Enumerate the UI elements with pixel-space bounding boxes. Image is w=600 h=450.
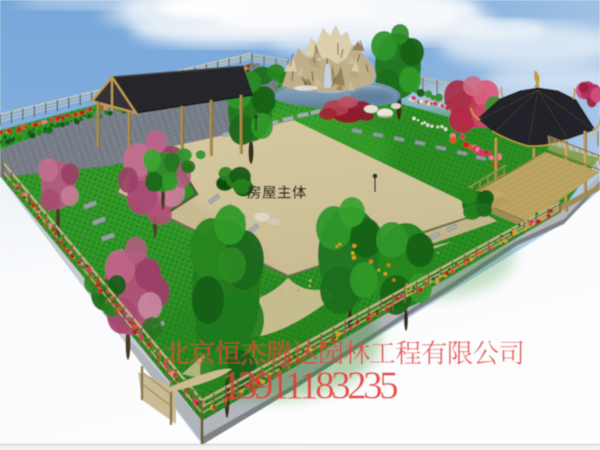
svg-text:13911183235: 13911183235 bbox=[222, 364, 397, 407]
